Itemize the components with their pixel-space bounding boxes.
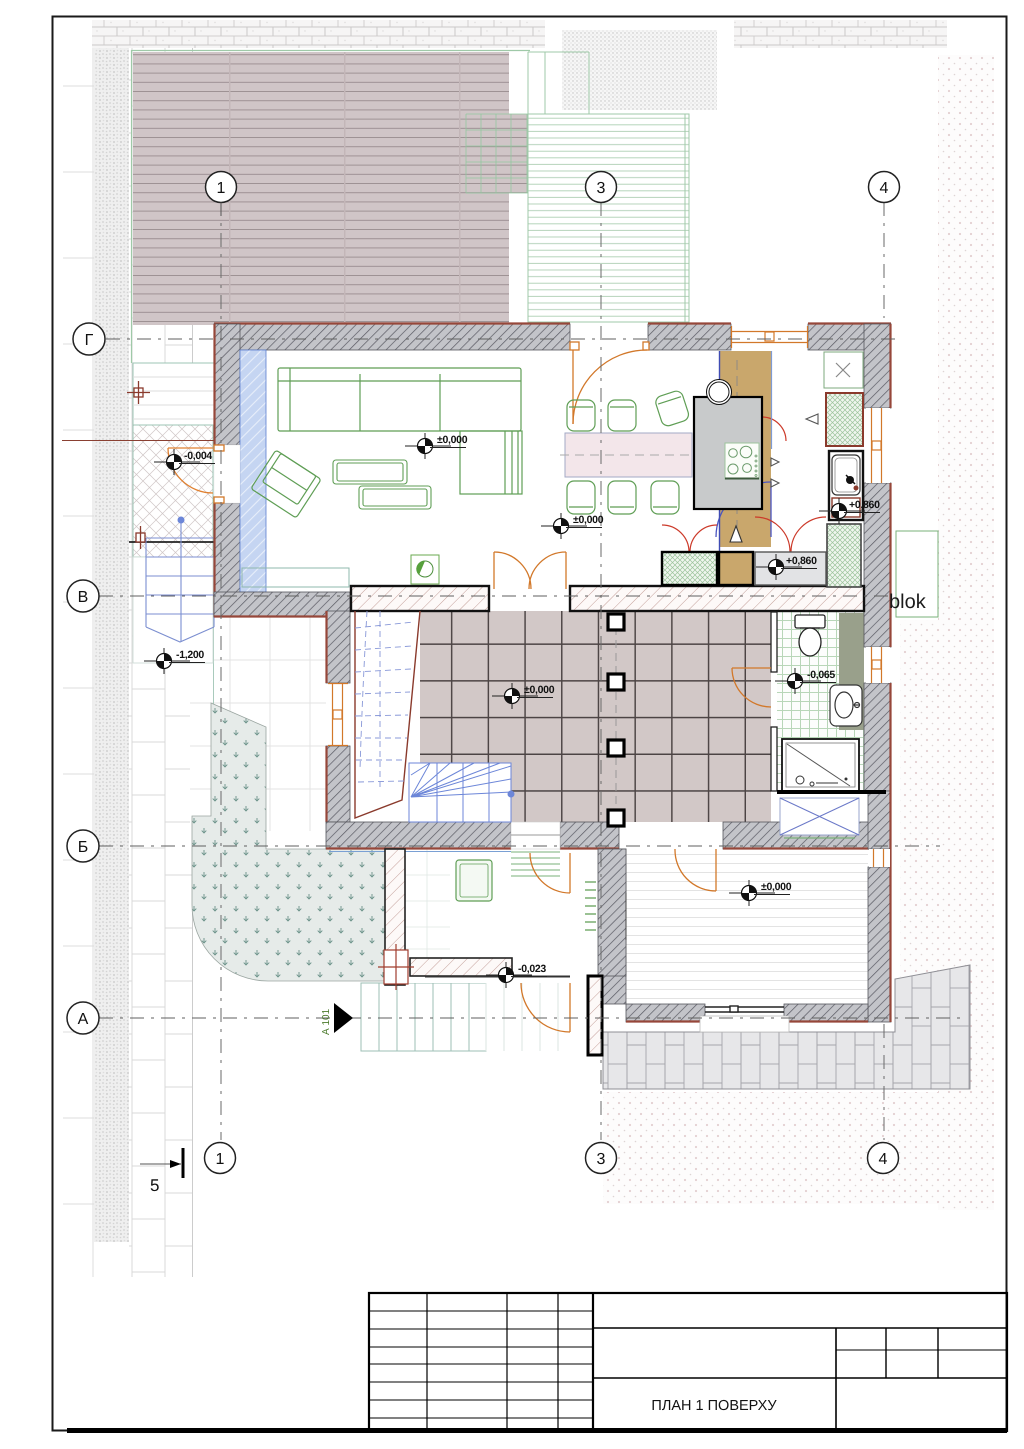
svg-text:А 101: А 101 [321, 1008, 332, 1035]
svg-text:-0,004: -0,004 [184, 450, 212, 462]
svg-text:-0,023: -0,023 [518, 963, 546, 975]
svg-text:В: В [78, 589, 89, 606]
svg-text:±0,000: ±0,000 [524, 684, 555, 696]
svg-text:Б: Б [78, 839, 89, 856]
svg-text:Г: Г [85, 332, 94, 349]
svg-text:+0,860: +0,860 [786, 555, 817, 567]
svg-text:±0,000: ±0,000 [437, 434, 468, 446]
svg-text:blok: blok [889, 591, 927, 613]
svg-text:5: 5 [150, 1176, 159, 1195]
svg-text:+0,860: +0,860 [849, 499, 880, 511]
svg-text:4: 4 [879, 1151, 888, 1168]
svg-text:1: 1 [217, 180, 226, 197]
svg-text:ПЛАН 1 ПОВЕРХУ: ПЛАН 1 ПОВЕРХУ [651, 1398, 777, 1414]
svg-text:±0,000: ±0,000 [573, 514, 604, 526]
svg-text:-1,200: -1,200 [176, 649, 204, 661]
svg-text:4: 4 [880, 180, 889, 197]
svg-text:3: 3 [597, 180, 606, 197]
svg-text:±0,000: ±0,000 [761, 881, 792, 893]
svg-text:1: 1 [216, 1151, 225, 1168]
svg-text:-0,065: -0,065 [807, 669, 835, 681]
svg-text:А: А [78, 1011, 89, 1028]
svg-text:3: 3 [597, 1151, 606, 1168]
